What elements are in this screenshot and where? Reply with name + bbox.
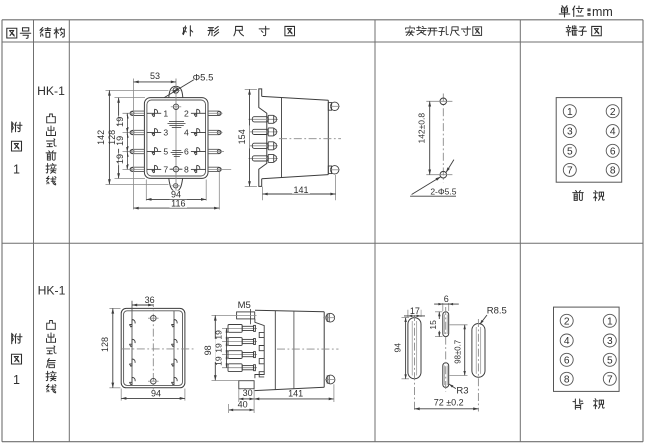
svg-text:6: 6 — [444, 294, 449, 304]
svg-text:98: 98 — [203, 345, 213, 355]
svg-text:HK-1: HK-1 — [37, 84, 65, 98]
svg-text:6: 6 — [610, 146, 616, 157]
svg-text:19: 19 — [115, 136, 125, 146]
svg-text:3: 3 — [567, 127, 573, 138]
svg-text:141: 141 — [288, 388, 303, 398]
svg-text:7: 7 — [607, 374, 613, 385]
svg-text:M5: M5 — [238, 300, 251, 311]
svg-text:17: 17 — [410, 306, 420, 316]
svg-text:2: 2 — [564, 316, 570, 327]
svg-text:1: 1 — [607, 316, 613, 327]
svg-text:1: 1 — [13, 373, 20, 387]
svg-text:19: 19 — [214, 330, 224, 340]
svg-text:98±0.7: 98±0.7 — [454, 340, 463, 364]
svg-text:4: 4 — [610, 127, 616, 138]
svg-text:3: 3 — [163, 128, 168, 138]
svg-text:3: 3 — [607, 336, 613, 347]
svg-text:6: 6 — [184, 147, 189, 157]
svg-text:5: 5 — [607, 355, 613, 366]
svg-text:15: 15 — [428, 320, 438, 330]
svg-text:Φ5.5: Φ5.5 — [193, 72, 214, 83]
svg-text:19: 19 — [115, 154, 125, 164]
svg-text:HK-1: HK-1 — [38, 284, 66, 298]
svg-text:19: 19 — [115, 117, 125, 127]
svg-text:94: 94 — [392, 343, 402, 353]
svg-text:30: 30 — [243, 388, 253, 398]
svg-text:142: 142 — [96, 130, 106, 145]
svg-text:5: 5 — [567, 146, 573, 157]
svg-text:2: 2 — [184, 108, 189, 118]
svg-text:1: 1 — [567, 107, 573, 118]
svg-text:7: 7 — [163, 164, 168, 174]
svg-text:116: 116 — [171, 199, 185, 209]
svg-text:R3: R3 — [456, 385, 468, 396]
svg-text:19: 19 — [214, 343, 224, 353]
svg-text:8: 8 — [564, 374, 570, 385]
svg-text:4: 4 — [564, 336, 570, 347]
svg-text:2: 2 — [610, 107, 616, 118]
svg-text:5: 5 — [163, 147, 168, 157]
svg-text:mm: mm — [592, 5, 613, 19]
svg-text:94: 94 — [151, 388, 161, 398]
svg-text:154: 154 — [237, 129, 247, 144]
svg-text:2-Φ5.5: 2-Φ5.5 — [430, 187, 456, 197]
svg-text:1: 1 — [163, 108, 168, 118]
svg-text:4: 4 — [184, 128, 189, 138]
svg-text:141: 141 — [293, 185, 308, 195]
svg-text:1: 1 — [13, 163, 20, 177]
svg-text:142±0.8: 142±0.8 — [416, 113, 426, 144]
svg-text:128: 128 — [100, 337, 110, 352]
svg-text:8: 8 — [184, 164, 189, 174]
svg-text:R8.5: R8.5 — [487, 306, 507, 317]
svg-text:53: 53 — [150, 71, 160, 81]
svg-text:36: 36 — [145, 295, 155, 305]
svg-text:19: 19 — [214, 356, 224, 366]
svg-text:6: 6 — [564, 355, 570, 366]
svg-text:8: 8 — [610, 166, 616, 177]
svg-text:72 ±0.2: 72 ±0.2 — [434, 397, 464, 407]
svg-text:7: 7 — [567, 166, 573, 177]
